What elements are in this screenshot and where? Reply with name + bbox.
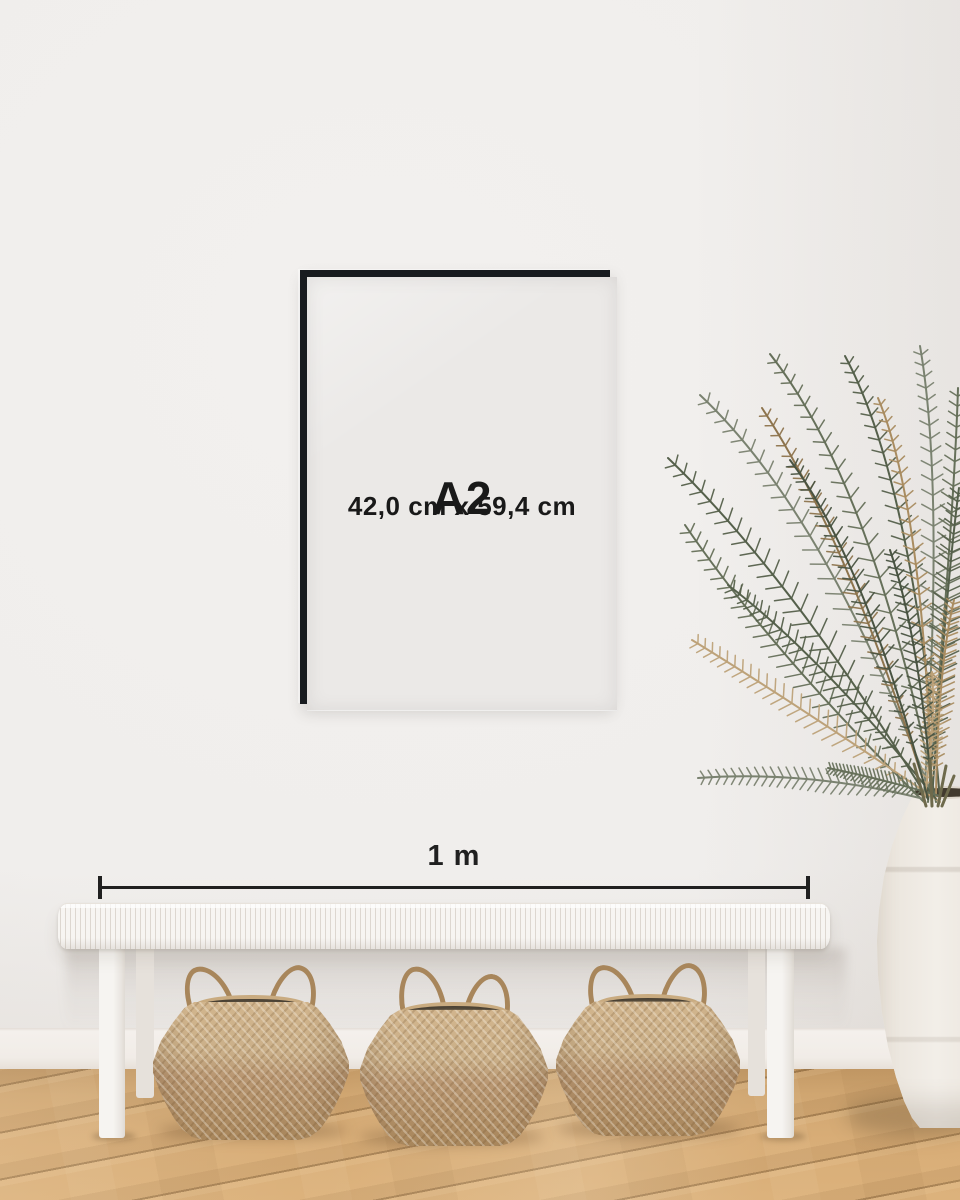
palm-fronds-graphic: [640, 340, 960, 820]
bench-leg-back-right: [748, 944, 765, 1096]
bench-leg-front-left: [99, 946, 125, 1138]
room-scene: A2 42,0 cm x 59,4 cm 1 m: [0, 0, 960, 1200]
poster: A2 42,0 cm x 59,4 cm: [307, 277, 617, 711]
seagrass-basket: [153, 990, 349, 1140]
seagrass-basket: [556, 990, 740, 1136]
bench-seat: [58, 903, 830, 949]
poster-frame: A2 42,0 cm x 59,4 cm: [300, 270, 610, 704]
seagrass-basket: [360, 998, 548, 1146]
basket-body: [360, 998, 548, 1146]
basket-body: [153, 990, 349, 1140]
bench-leg-back-left: [136, 944, 154, 1098]
bench-leg-front-right: [767, 946, 794, 1138]
scale-bar-tick-right: [806, 876, 810, 899]
basket-body: [556, 990, 740, 1136]
scale-bar-line: [100, 886, 808, 889]
palm-plant: [640, 340, 960, 820]
scale-bar-tick-left: [98, 876, 102, 899]
poster-dimensions-label: 42,0 cm x 59,4 cm: [348, 491, 576, 522]
scale-bar-label: 1 m: [100, 840, 808, 874]
